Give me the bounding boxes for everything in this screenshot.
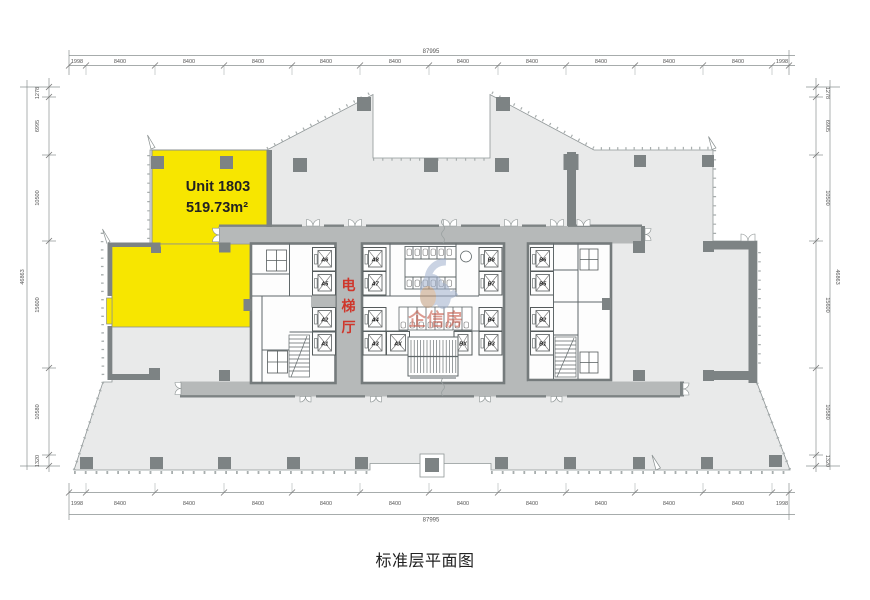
svg-text:B8: B8 xyxy=(488,258,496,264)
svg-text:8400: 8400 xyxy=(252,59,264,65)
svg-text:8400: 8400 xyxy=(183,59,195,65)
svg-text:8400: 8400 xyxy=(457,501,469,507)
svg-text:8400: 8400 xyxy=(732,59,744,65)
svg-text:8400: 8400 xyxy=(320,59,332,65)
svg-text:8400: 8400 xyxy=(526,59,538,65)
svg-text:B1: B1 xyxy=(539,342,546,348)
svg-text:6995: 6995 xyxy=(35,120,41,132)
svg-text:BX: BX xyxy=(459,342,468,348)
svg-text:1998: 1998 xyxy=(71,59,83,65)
svg-text:8400: 8400 xyxy=(252,501,264,507)
svg-text:10580: 10580 xyxy=(35,404,41,419)
svg-text:8400: 8400 xyxy=(663,501,675,507)
svg-text:A3: A3 xyxy=(371,342,380,348)
svg-text:电: 电 xyxy=(342,277,356,293)
svg-text:87995: 87995 xyxy=(423,49,440,55)
svg-text:厅: 厅 xyxy=(342,319,356,335)
svg-text:Unit 1803: Unit 1803 xyxy=(186,179,250,195)
svg-text:8400: 8400 xyxy=(457,59,469,65)
svg-text:1320: 1320 xyxy=(35,455,41,467)
svg-text:A7: A7 xyxy=(371,282,380,288)
svg-text:8400: 8400 xyxy=(389,59,401,65)
svg-text:8400: 8400 xyxy=(114,59,126,65)
svg-text:8400: 8400 xyxy=(389,501,401,507)
svg-text:46863: 46863 xyxy=(20,269,26,284)
svg-text:A8: A8 xyxy=(371,258,380,264)
svg-text:B4: B4 xyxy=(488,318,496,324)
svg-text:B6: B6 xyxy=(539,258,547,264)
svg-text:46863: 46863 xyxy=(834,269,840,284)
svg-text:梯: 梯 xyxy=(342,298,356,314)
svg-text:8400: 8400 xyxy=(183,501,195,507)
svg-text:AX: AX xyxy=(393,342,403,348)
svg-text:B5: B5 xyxy=(539,282,547,288)
svg-text:519.73m²: 519.73m² xyxy=(186,200,248,216)
svg-text:10500: 10500 xyxy=(824,190,830,205)
svg-text:15600: 15600 xyxy=(824,297,830,312)
svg-text:A5: A5 xyxy=(320,282,329,288)
svg-text:6905: 6905 xyxy=(824,120,830,132)
svg-text:A1: A1 xyxy=(320,342,328,348)
svg-text:A6: A6 xyxy=(320,258,329,264)
svg-text:8400: 8400 xyxy=(114,501,126,507)
svg-text:8400: 8400 xyxy=(595,501,607,507)
svg-text:8400: 8400 xyxy=(526,501,538,507)
svg-text:1278: 1278 xyxy=(35,87,41,99)
svg-text:A2: A2 xyxy=(320,318,329,324)
svg-text:B3: B3 xyxy=(488,342,496,348)
svg-text:15600: 15600 xyxy=(35,297,41,312)
svg-text:企信房: 企信房 xyxy=(407,310,464,330)
svg-text:1278: 1278 xyxy=(824,87,830,99)
svg-text:8400: 8400 xyxy=(732,501,744,507)
svg-text:8400: 8400 xyxy=(663,59,675,65)
svg-text:8400: 8400 xyxy=(320,501,332,507)
svg-text:10580: 10580 xyxy=(824,404,830,419)
svg-text:1998: 1998 xyxy=(776,59,788,65)
svg-text:1998: 1998 xyxy=(71,501,83,507)
svg-text:标准层平面图: 标准层平面图 xyxy=(375,552,474,570)
svg-text:A4: A4 xyxy=(371,318,380,324)
svg-text:B2: B2 xyxy=(539,318,547,324)
svg-text:1998: 1998 xyxy=(776,501,788,507)
svg-text:B7: B7 xyxy=(488,282,496,288)
svg-text:87995: 87995 xyxy=(423,518,440,524)
svg-text:8400: 8400 xyxy=(595,59,607,65)
svg-text:1320: 1320 xyxy=(824,455,830,467)
svg-text:10500: 10500 xyxy=(35,190,41,205)
